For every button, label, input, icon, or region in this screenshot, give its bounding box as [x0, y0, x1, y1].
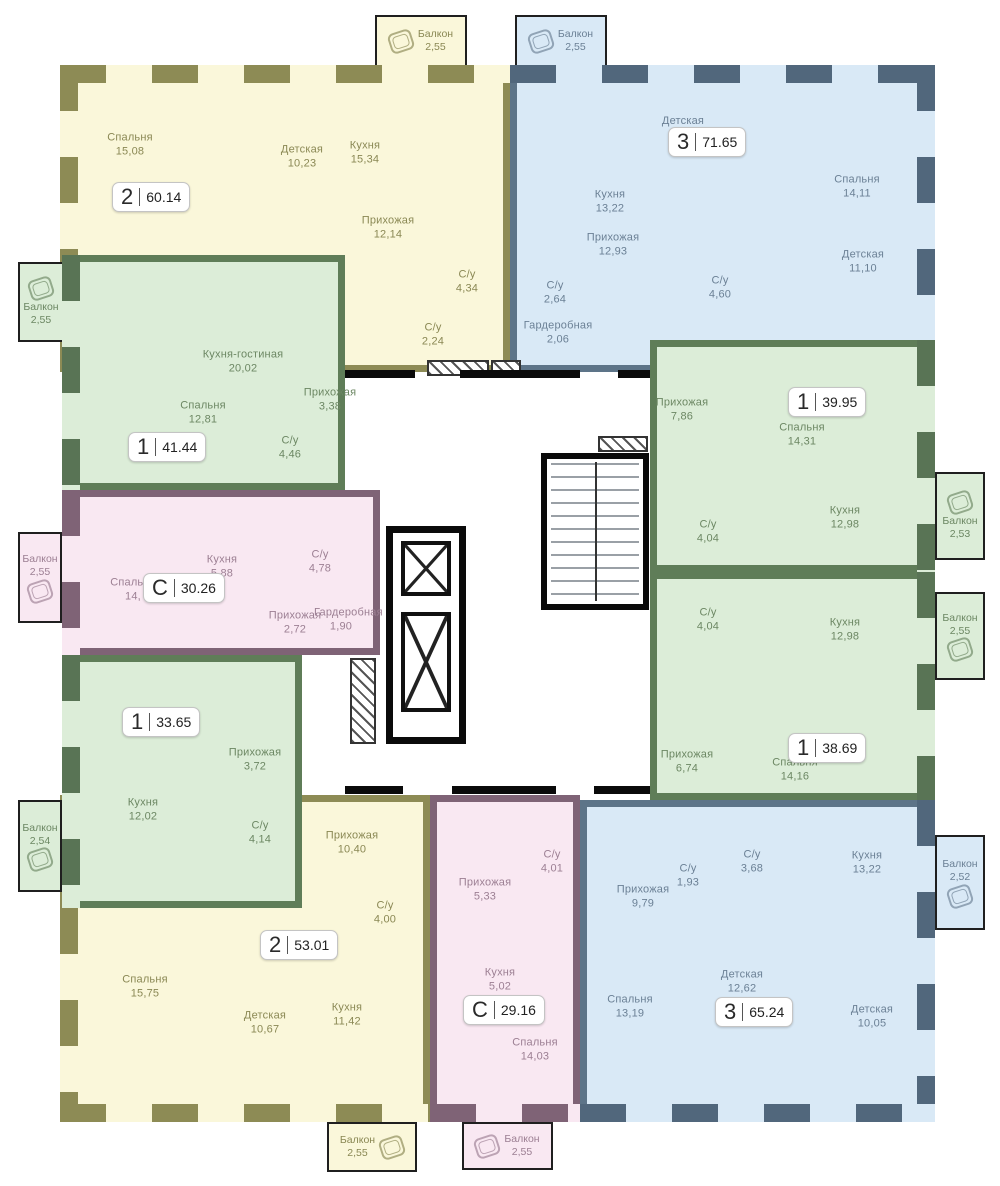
room-label: Спальня15,75 — [122, 973, 168, 1001]
apartment-badge[interactable]: 365.24 — [715, 997, 793, 1027]
room-label: С/у1,93 — [677, 862, 699, 890]
apartment-badge[interactable]: С30.26 — [143, 573, 225, 603]
apartment-badge[interactable]: 138.69 — [788, 733, 866, 763]
room-label: Спальня15,08 — [107, 131, 153, 159]
room-label: Кухня12,02 — [128, 796, 158, 824]
armchair-icon — [25, 846, 54, 873]
balcony: Балкон2,55 — [935, 592, 985, 680]
room-label: Прихожая3,38 — [304, 386, 357, 414]
room-label: Кухня12,98 — [830, 616, 860, 644]
room-label: Детская12,62 — [721, 968, 763, 996]
room-label: С/у2,24 — [422, 321, 444, 349]
room-label: С/у4,14 — [249, 819, 271, 847]
exterior-wall — [60, 65, 78, 255]
exterior-wall — [62, 655, 80, 908]
room-label: Детская10,23 — [281, 143, 323, 171]
room-label: Прихожая9,79 — [617, 883, 670, 911]
exterior-wall — [62, 255, 80, 490]
badge-divider — [494, 1001, 495, 1019]
room-label: С/у4,01 — [541, 848, 563, 876]
room-label: С/у4,78 — [309, 548, 331, 576]
room-label: С/у3,68 — [741, 848, 763, 876]
room-label: Спальня14,31 — [779, 421, 825, 449]
room-label: Кухня15,34 — [350, 139, 380, 167]
badge-divider — [742, 1003, 743, 1021]
room-label: Спальня14,03 — [512, 1036, 558, 1064]
room-label: С/у4,34 — [456, 268, 478, 296]
badge-divider — [139, 188, 140, 206]
vent-shaft — [350, 658, 376, 744]
exterior-wall — [917, 65, 935, 342]
room-label: Кухня13,22 — [595, 188, 625, 216]
elevator-icon — [401, 541, 451, 596]
room-label: С/у2,64 — [544, 279, 566, 307]
room-label: Прихожая5,33 — [459, 876, 512, 904]
balcony: Балкон2,52 — [935, 835, 985, 930]
room-label: Прихожая10,40 — [326, 829, 379, 857]
balcony: Балкон2,54 — [18, 800, 62, 892]
badge-divider — [287, 936, 288, 954]
badge-divider — [155, 438, 156, 456]
balcony: Балкон2,53 — [935, 472, 985, 560]
apartment-badge[interactable]: С29.16 — [463, 995, 545, 1025]
apartment-1-39-95[interactable] — [650, 340, 935, 572]
armchair-icon — [945, 882, 974, 909]
stairs-icon — [541, 453, 649, 610]
room-label: С/у4,60 — [709, 274, 731, 302]
room-label: Прихожая7,86 — [656, 396, 709, 424]
exterior-wall — [62, 490, 80, 655]
room-label: Спальня13,19 — [607, 993, 653, 1021]
corridor-wall — [460, 370, 580, 378]
apartment-badge[interactable]: 371.65 — [668, 127, 746, 157]
badge-divider — [149, 713, 150, 731]
room-label: Кухня13,22 — [852, 849, 882, 877]
corridor-wall — [452, 786, 556, 794]
room-label: Детская10,05 — [851, 1003, 893, 1031]
exterior-wall — [917, 572, 935, 800]
room-label: Прихожая6,74 — [661, 748, 714, 776]
armchair-icon — [945, 489, 974, 516]
armchair-icon — [473, 1132, 502, 1159]
room-label: Детская11,10 — [842, 248, 884, 276]
room-label: Прихожая3,72 — [229, 746, 282, 774]
room-label: Кухня-гостиная20,02 — [203, 348, 284, 376]
room-label: С/у4,04 — [697, 606, 719, 634]
armchair-icon — [526, 27, 555, 54]
balcony: Балкон2,55 — [515, 15, 607, 67]
badge-divider — [174, 579, 175, 597]
armchair-icon — [25, 577, 54, 604]
room-label: Гардеробная1,90 — [314, 606, 368, 634]
exterior-wall — [580, 1104, 935, 1122]
floor-plan: Спальня15,08 Детская10,23 Кухня15,34 При… — [0, 0, 1000, 1186]
apartment-badge[interactable]: 253.01 — [260, 930, 338, 960]
apartment-badge[interactable]: 260.14 — [112, 182, 190, 212]
room-label: Спальня14,11 — [834, 173, 880, 201]
apartment-badge[interactable]: 133.65 — [122, 707, 200, 737]
armchair-icon — [945, 636, 974, 663]
exterior-wall — [430, 1104, 580, 1122]
balcony: Балкон2,55 — [375, 15, 467, 67]
badge-divider — [695, 133, 696, 151]
armchair-icon — [386, 27, 415, 54]
stair-rail — [595, 462, 597, 601]
apartment-badge[interactable]: 139.95 — [788, 387, 866, 417]
room-label: Кухня11,42 — [332, 1001, 362, 1029]
corridor-wall — [345, 786, 403, 794]
corridor-wall — [618, 370, 650, 378]
exterior-wall — [917, 340, 935, 572]
apartment-s-29-16[interactable] — [430, 795, 580, 1122]
vent-shaft — [598, 436, 648, 452]
room-label: Детская10,67 — [244, 1009, 286, 1037]
room-label: Спальня12,81 — [180, 399, 226, 427]
room-label: С/у4,04 — [697, 518, 719, 546]
balcony: Балкон2,55 — [18, 262, 64, 342]
apartment-badge[interactable]: 141.44 — [128, 432, 206, 462]
balcony: Балкон2,55 — [462, 1122, 553, 1170]
exterior-wall — [510, 65, 935, 83]
exterior-wall — [60, 65, 510, 83]
exterior-wall — [60, 908, 78, 1122]
apartment-1-33-65[interactable] — [62, 655, 302, 908]
room-label: Кухня12,98 — [830, 504, 860, 532]
badge-divider — [815, 393, 816, 411]
exterior-wall — [60, 1104, 430, 1122]
room-label: Прихожая12,14 — [362, 214, 415, 242]
room-label: С/у4,46 — [279, 434, 301, 462]
corridor-wall — [594, 786, 650, 794]
room-label: Гардеробная2,06 — [524, 319, 593, 347]
elevator-icon — [401, 612, 451, 712]
room-label: Кухня5,02 — [485, 966, 515, 994]
balcony: Балкон2,55 — [18, 532, 62, 623]
corridor-wall — [345, 370, 415, 378]
exterior-wall — [917, 800, 935, 1122]
room-label: С/у4,00 — [374, 899, 396, 927]
room-label: Прихожая12,93 — [587, 231, 640, 259]
armchair-icon — [377, 1133, 406, 1160]
badge-divider — [815, 739, 816, 757]
armchair-icon — [26, 275, 55, 302]
balcony: Балкон2,55 — [327, 1122, 417, 1172]
